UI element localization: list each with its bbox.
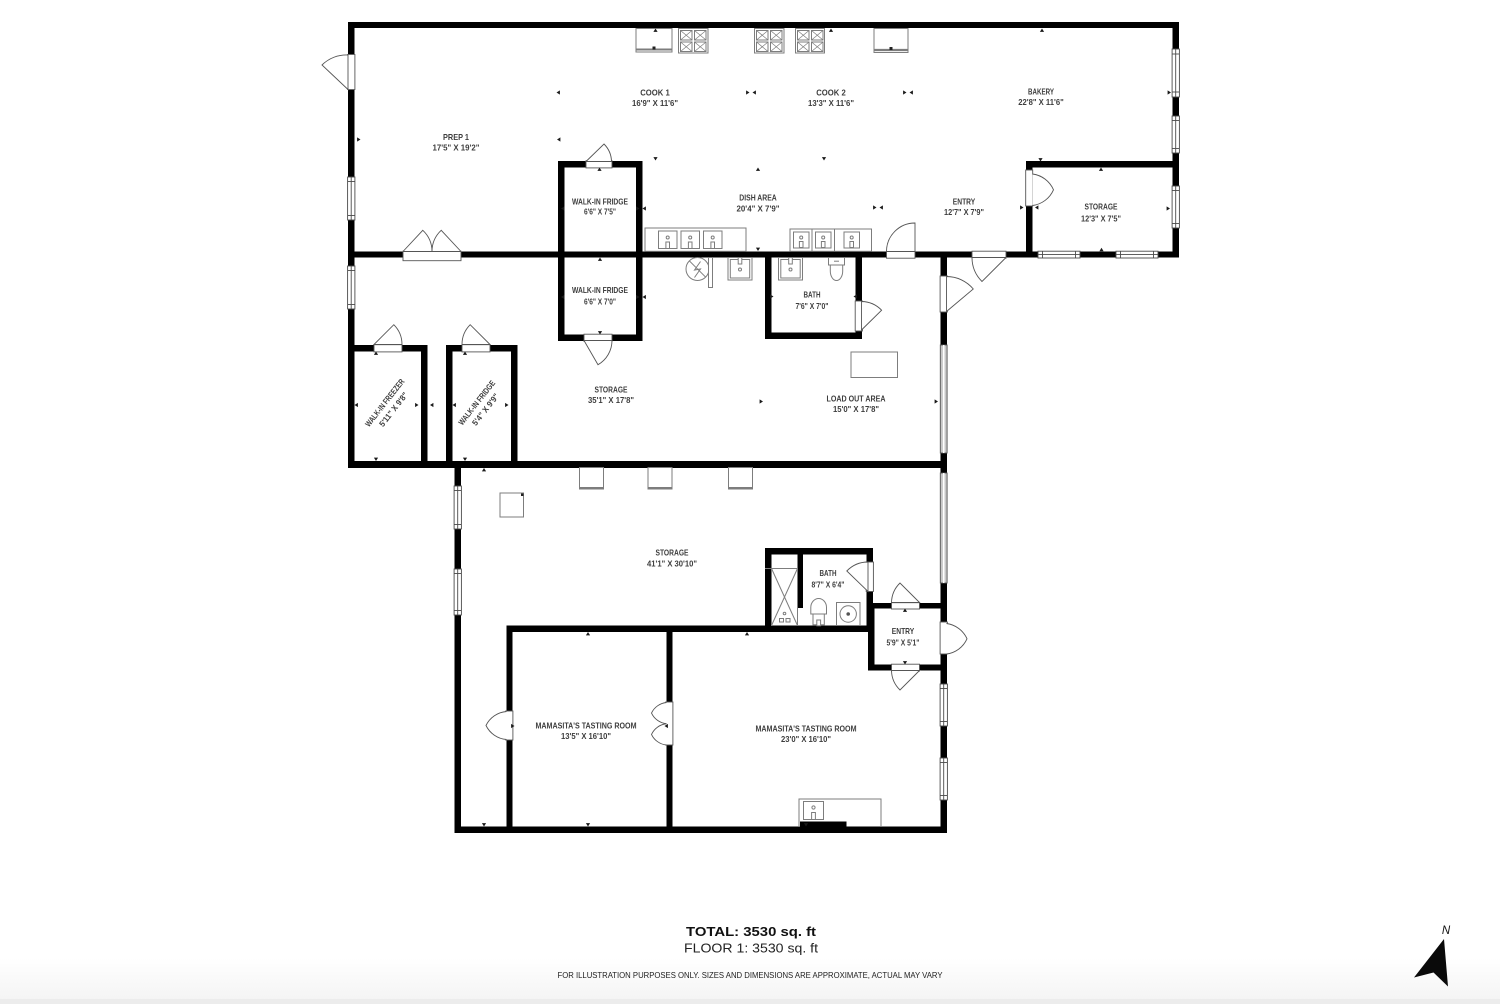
svg-text:13'5" X 16'10": 13'5" X 16'10" <box>561 731 611 741</box>
svg-text:17'5" X 19'2": 17'5" X 19'2" <box>433 143 480 153</box>
svg-text:12'3" X 7'5": 12'3" X 7'5" <box>1081 214 1121 224</box>
svg-text:15'0" X 17'8": 15'0" X 17'8" <box>833 404 879 414</box>
svg-text:35'1" X 17'8": 35'1" X 17'8" <box>588 395 634 405</box>
svg-text:20'4" X 7'9": 20'4" X 7'9" <box>737 204 780 214</box>
svg-text:LOAD OUT AREA: LOAD OUT AREA <box>827 394 886 404</box>
svg-text:7'6" X 7'0": 7'6" X 7'0" <box>796 301 829 311</box>
svg-text:BAKERY: BAKERY <box>1028 87 1054 97</box>
svg-text:23'0" X 16'10": 23'0" X 16'10" <box>781 734 831 744</box>
svg-text:6'6" X 7'0": 6'6" X 7'0" <box>584 297 616 307</box>
svg-text:N: N <box>1442 925 1451 937</box>
svg-text:ENTRY: ENTRY <box>953 197 976 207</box>
svg-text:COOK 2: COOK 2 <box>816 88 846 98</box>
svg-text:FLOOR 1: 3530 sq. ft: FLOOR 1: 3530 sq. ft <box>684 941 818 956</box>
svg-text:BATH: BATH <box>820 568 837 578</box>
svg-text:STORAGE: STORAGE <box>1085 202 1118 212</box>
svg-text:13'3" X 11'6": 13'3" X 11'6" <box>808 98 854 108</box>
svg-text:MAMASITA'S TASTING ROOM: MAMASITA'S TASTING ROOM <box>536 721 637 731</box>
svg-text:BATH: BATH <box>804 290 821 300</box>
svg-text:TOTAL: 3530 sq. ft: TOTAL: 3530 sq. ft <box>686 924 817 939</box>
svg-text:MAMASITA'S TASTING ROOM: MAMASITA'S TASTING ROOM <box>756 724 857 734</box>
svg-text:22'8" X 11'6": 22'8" X 11'6" <box>1018 97 1064 107</box>
svg-text:ENTRY: ENTRY <box>892 626 915 636</box>
svg-text:6'6" X 7'5": 6'6" X 7'5" <box>584 207 616 217</box>
svg-text:WALK-IN FRIDGE: WALK-IN FRIDGE <box>572 197 628 207</box>
svg-text:16'9" X 11'6": 16'9" X 11'6" <box>632 98 678 108</box>
svg-text:8'7" X 6'4": 8'7" X 6'4" <box>812 580 845 590</box>
svg-text:STORAGE: STORAGE <box>595 385 628 395</box>
svg-text:STORAGE: STORAGE <box>656 548 689 558</box>
svg-text:FOR ILLUSTRATION PURPOSES ONLY: FOR ILLUSTRATION PURPOSES ONLY. SIZES AN… <box>558 971 944 980</box>
svg-text:41'1" X 30'10": 41'1" X 30'10" <box>647 559 697 569</box>
svg-text:COOK 1: COOK 1 <box>640 88 670 98</box>
svg-text:5'9" X 5'1": 5'9" X 5'1" <box>887 638 920 648</box>
svg-text:12'7" X 7'9": 12'7" X 7'9" <box>944 207 984 217</box>
svg-text:WALK-IN FRIDGE: WALK-IN FRIDGE <box>572 285 628 295</box>
svg-text:PREP 1: PREP 1 <box>443 132 469 142</box>
svg-text:DISH AREA: DISH AREA <box>739 193 777 203</box>
